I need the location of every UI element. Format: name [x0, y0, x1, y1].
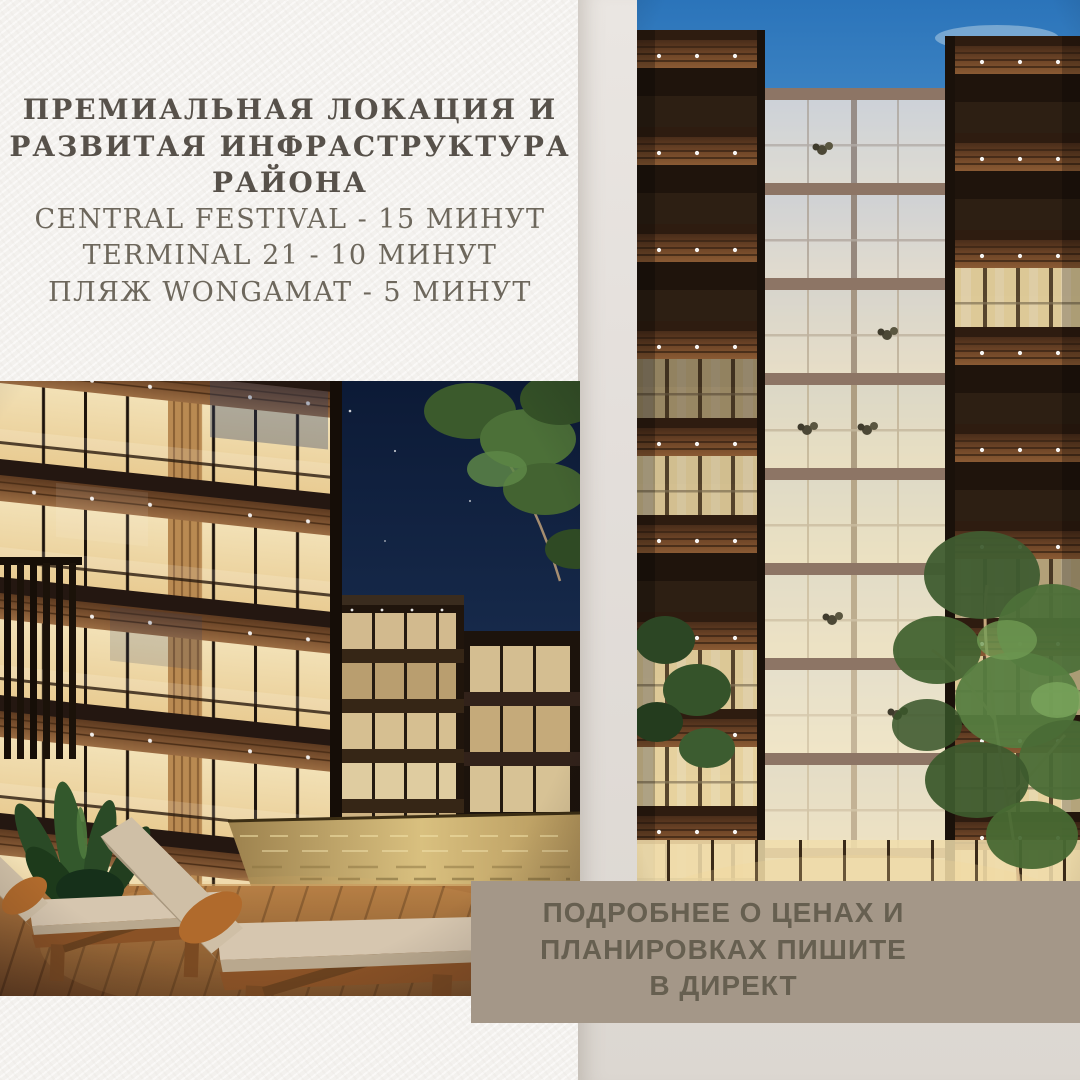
cta-line-2: ПЛАНИРОВКАХ ПИШИТЕ: [471, 932, 976, 969]
headline-line-1: ПРЕМИАЛЬНАЯ ЛОКАЦИЯ И: [0, 92, 580, 129]
cta-banner: ПОДРОБНЕЕ О ЦЕНАХ И ПЛАНИРОВКАХ ПИШИТЕ В…: [471, 881, 1080, 1023]
headline-line-5: TERMINAL 21 - 10 МИНУТ: [0, 238, 580, 275]
cta-line-1: ПОДРОБНЕЕ О ЦЕНАХ И: [471, 895, 976, 932]
headline-block: ПРЕМИАЛЬНАЯ ЛОКАЦИЯ И РАЗВИТАЯ ИНФРАСТРУ…: [0, 92, 580, 311]
headline-line-6: ПЛЯЖ WONGAMAT - 5 МИНУТ: [0, 275, 580, 312]
headline-line-3: РАЙОНА: [0, 165, 580, 202]
headline-line-2: РАЗВИТАЯ ИНФРАСТРУКТУРА: [0, 129, 580, 166]
right-photo: [637, 0, 1080, 1010]
headline-line-4: CENTRAL FESTIVAL - 15 МИНУТ: [0, 202, 580, 239]
right-photo-illustration: [637, 0, 1080, 1010]
vignette: [637, 0, 1080, 1010]
post-canvas: ПРЕМИАЛЬНАЯ ЛОКАЦИЯ И РАЗВИТАЯ ИНФРАСТРУ…: [0, 0, 1080, 1080]
cta-line-3: В ДИРЕКТ: [471, 968, 976, 1005]
